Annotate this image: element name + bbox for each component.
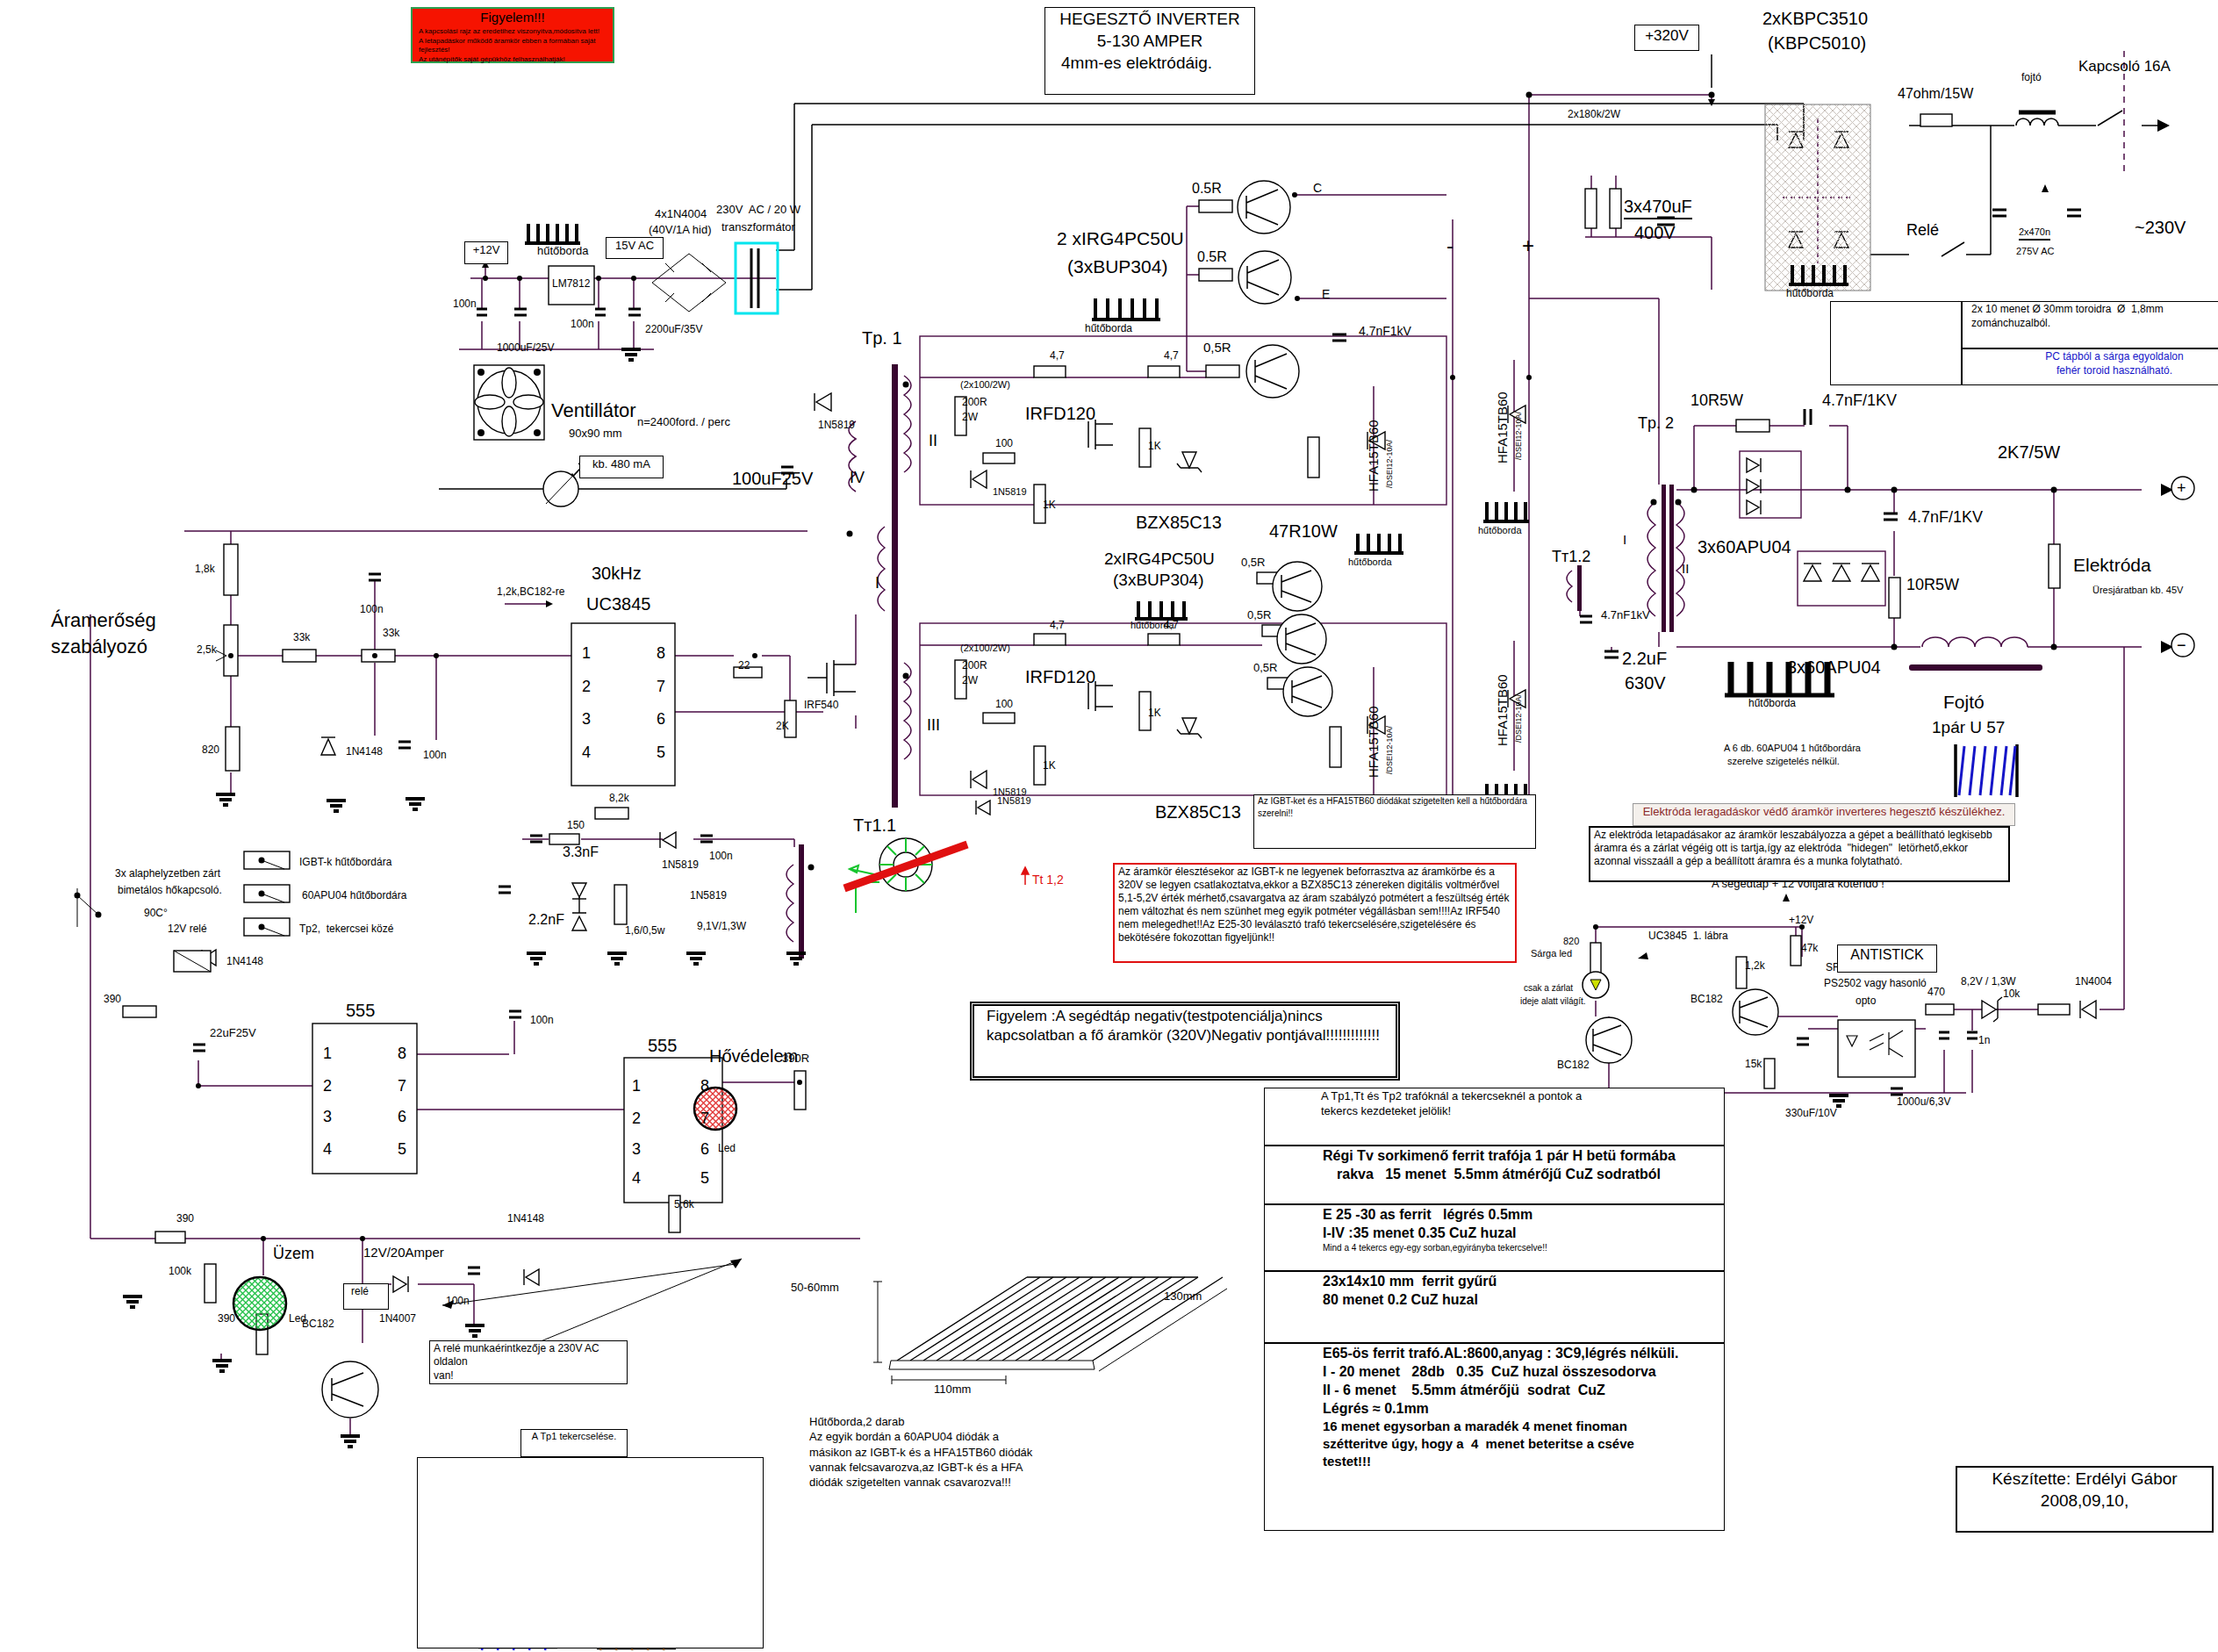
c-47nf-3: 4.7nF/1KV <box>1822 391 1897 410</box>
rele-small-box-line-1: relé <box>348 1285 384 1298</box>
thermo-1: 3x alaphelyzetben zárt <box>115 868 220 880</box>
igbt-isolation-note-line-1: Az IGBT-ket és a HFA15TB60 diódákat szig… <box>1258 796 1532 808</box>
d-4x1n4004-label: 4x1N4004 <box>655 208 707 221</box>
rele-small-box: relé <box>343 1283 389 1310</box>
igbt-label-2b: (3xBUP304) <box>1113 571 1204 590</box>
uc-pin-5: 5 <box>657 743 665 762</box>
kapcsolo-label: Kapcsoló 16A <box>2078 58 2171 75</box>
notes-tp2-line-5: 16 menet egysorban a maradék 4 menet fin… <box>1268 1419 1720 1435</box>
r-390-2: 390 <box>176 1213 194 1225</box>
hutoborda-label-3: hűtőborda <box>1348 557 1392 568</box>
antistick-box: ANTISTICK <box>1837 945 1937 973</box>
warning-box-line-1: Figyelem!!! <box>416 10 609 26</box>
dim-110: 110mm <box>934 1383 971 1397</box>
uc-pin-4: 4 <box>582 743 591 762</box>
timer2-pin-8: 8 <box>700 1077 709 1095</box>
apu-note-2: szerelve szigetelés nélkül. <box>1727 756 1840 767</box>
dim-50-60: 50-60mm <box>791 1282 839 1295</box>
apu-label-1: 3x60APU04 <box>1698 537 1791 557</box>
dsei-label-3: /DSEI12-10A/ <box>1385 726 1394 774</box>
igbt-isolation-note-line-2: szerelni!! <box>1258 808 1532 820</box>
r-100k: 100k <box>169 1266 191 1278</box>
r-2x100-2: (2x100/2W) <box>960 643 1010 654</box>
r-05r-1: 0.5R <box>1192 181 1222 197</box>
c-2x470n-label: 2x470n <box>2019 226 2050 241</box>
credit-box: Készítette: Erdélyi Gábor2008,09,10, <box>1956 1466 2214 1533</box>
uc-pin-3: 3 <box>582 710 591 729</box>
d-1n5819-c: 1N5819 <box>690 890 727 902</box>
heatsink-note-line-2: Az egyik bordán a 60APU04 diódák a <box>809 1430 1101 1444</box>
bzx-label-1: BZX85C13 <box>1136 513 1222 533</box>
c-22uf-label: 2.2uF <box>1622 649 1667 669</box>
emit-label: E <box>1322 287 1330 301</box>
d-1n5819-b: 1N5819 <box>662 859 699 872</box>
timer1-pin-7: 7 <box>398 1077 406 1095</box>
dsei-label-2: /DSEI12-10A/ <box>1514 412 1523 460</box>
notes-fojto-line-1: Régi Tv sorkimenő ferrit trafója 1 pár H… <box>1268 1147 1720 1165</box>
led-label-2: Led <box>718 1143 736 1155</box>
igbt-isolation-note: Az IGBT-ket és a HFA15TB60 diódákat szig… <box>1253 794 1536 849</box>
toroid-note-box-line-2: zománchuzalból. <box>1966 317 2218 330</box>
tp1-label: Tp. 1 <box>862 328 902 348</box>
lm7812-label: LM7812 <box>552 278 590 291</box>
r-1k-4: 1K <box>1148 707 1161 720</box>
letapadas-box-line-1: Az elektróda letapadásakor az áramkör le… <box>1594 829 2005 868</box>
r-2k7-label: 2K7/5W <box>1998 442 2060 463</box>
bc182-label-2: BC182 <box>1557 1059 1590 1072</box>
tp1-tekercs-box: A Tp1 tekercselése. <box>520 1429 628 1457</box>
d-1n5819-e: 1N5819 <box>993 486 1027 498</box>
c-100n-t2: 100n <box>446 1296 470 1308</box>
r-16-05w: 1,6/0,5w <box>625 925 664 937</box>
c-1n-label: 1n <box>1978 1035 1990 1047</box>
choke-icon-blue <box>1956 744 2017 797</box>
tp2-label: Tp. 2 <box>1638 414 1674 433</box>
r-1k-3: 1K <box>1043 760 1056 772</box>
c-33nf: 3.3nF <box>563 844 599 860</box>
bus-plus: + <box>1522 233 1534 258</box>
elektroda-label: Elektróda <box>2073 555 2151 576</box>
r-2k: 2K <box>776 721 789 733</box>
r-390r-label: 390R <box>782 1052 809 1066</box>
c-47nf-2: 4.7nF1kV <box>1601 609 1650 622</box>
r-15k: 15k <box>1745 1059 1762 1071</box>
r-05r-2: 0.5R <box>1197 249 1227 265</box>
apu-label-2: 3x60APU04 <box>1787 657 1881 678</box>
r-2x180k-label: 2x180k/2W <box>1568 109 1620 121</box>
tt11-label: Tт1.1 <box>853 815 896 836</box>
v15ac-box: 15V AC <box>606 237 664 259</box>
tp2-winding-i: I <box>1623 532 1626 547</box>
notes-tp2-line-6: szétteritve úgy, hogy a 4 menet beterits… <box>1268 1436 1720 1453</box>
notes-tt: 23x14x10 mm ferrit gyűrű80 menet 0.2 CuZ… <box>1264 1271 1725 1343</box>
uc-labra-note: UC3845 1. lábra <box>1648 930 1728 943</box>
heatsink-note-line-4: vannak felcsavarozva,az IGBT-k és a HFA <box>809 1461 1101 1475</box>
aramerosseg-1: Áramerőség <box>51 609 156 631</box>
fojto-label: Fojtó <box>1943 692 1985 713</box>
c-1000uf-label: 1000uF/25V <box>497 342 554 355</box>
notes-tp1-line-3: Mind a 4 tekercs egy-egy sorban,egyirány… <box>1268 1243 1720 1254</box>
rele-note-box: A relé munkaérintkezője a 230V AC oldalo… <box>429 1340 628 1384</box>
c-2200uf-label: 2200uF/35V <box>645 324 702 336</box>
notes-fojto-line-2: rakva 15 menet 5.5mm átmérőjű CuZ sodrat… <box>1268 1166 1720 1183</box>
warning-box-line-4: Az utánépítők saját gépükhöz felhasználh… <box>416 55 609 64</box>
dsei-label-1: /DSEI12-10A/ <box>1385 440 1394 488</box>
r-820-anti: 820 <box>1563 936 1579 947</box>
antistick-box-line-1: ANTISTICK <box>1841 946 1933 964</box>
plus-12v-box-line-1: +12V <box>469 243 504 257</box>
r-47-4: 4,7 <box>1164 620 1179 632</box>
r-05r-5: 0,5R <box>1247 609 1271 622</box>
c-100n-t1: 100n <box>530 1015 554 1027</box>
igbt-label-2a: 2xIRG4PC50U <box>1104 549 1215 569</box>
r-470: 470 <box>1927 987 1945 999</box>
timer1-pin-6: 6 <box>398 1108 406 1126</box>
timer1-pin-5: 5 <box>398 1140 406 1159</box>
r-390-1: 390 <box>104 994 121 1006</box>
kbpc-label: 2xKBPC3510 <box>1762 9 1868 29</box>
c-100n-psu1: 100n <box>453 298 477 311</box>
winding-i: I <box>875 574 879 593</box>
toroid-icon-box <box>1830 301 1962 385</box>
notes-dots-line-1: A Tp1,Tt és Tp2 trafóknál a tekercseknél… <box>1268 1089 1720 1103</box>
warning-box-line-2: A kapcsolási rajz az eredetihez viszonyí… <box>416 27 609 36</box>
d-1n4148-rele: 1N4148 <box>226 956 263 968</box>
thermo-2: bimetálos hőkapcsoló. <box>118 885 222 897</box>
c-1000u-label: 1000u/6,3V <box>1897 1096 1950 1109</box>
bzx-label-2: BZX85C13 <box>1155 802 1241 822</box>
timer1-pin-1: 1 <box>323 1045 332 1063</box>
output-diode-groups <box>1740 451 1885 606</box>
r-47-1: 4,7 <box>1050 350 1065 363</box>
timer2-pin-3: 3 <box>632 1140 641 1159</box>
title-box-line-2: 5-130 AMPER <box>1049 31 1251 52</box>
kbpc-label-2: (KBPC5010) <box>1768 33 1866 54</box>
timer2-pin-6: 6 <box>700 1140 709 1159</box>
r-100-2: 100 <box>995 699 1013 711</box>
schematic-canvas: 2xKBPC3510(KBPC5010)47ohm/15WfojtóKapcso… <box>0 0 2218 1652</box>
uresjarat-label: Üresjáratban kb. 45V <box>2092 585 2183 596</box>
toroid-note-box-line-1: 2x 10 menet Ø 30mm toroidra Ø 1,8mm <box>1966 303 2218 316</box>
hutoborda-label-2: hűtőborda <box>1085 323 1132 335</box>
trafo-label-1: 230V AC / 20 W <box>716 204 800 217</box>
bus-minus: - <box>1446 233 1454 258</box>
warning-box: Figyelem!!!A kapcsolási rajz az eredetih… <box>411 7 614 63</box>
r-390-3: 390 <box>218 1313 235 1325</box>
rele-12v-label: 12V relé <box>168 923 207 936</box>
notes-tp2-line-3: II - 6 menet 5.5mm átmérőjü sodrat CuZ <box>1268 1382 1720 1399</box>
uc-pin-7: 7 <box>657 678 665 696</box>
term-minus: − <box>2177 636 2186 655</box>
title-box-line-3: 4mm-es elektródáig. <box>1049 53 1251 74</box>
hutoborda-label-1: hűtőborda <box>537 245 589 258</box>
hfa-label-2: HFA15TB60 <box>1495 391 1510 463</box>
r-1k-1: 1K <box>1043 499 1056 512</box>
kb480-box: kb. 480 mA <box>579 456 664 478</box>
uzem-label: Üzem <box>273 1245 314 1263</box>
dsei-label-4: /DSEI12-10A/ <box>1514 694 1523 743</box>
timer2-pin-1: 1 <box>632 1077 641 1095</box>
d-1n4004-label: 1N4004 <box>2075 976 2112 988</box>
c-47nf-4: 4.7nF/1KV <box>1908 508 1983 527</box>
c-22uf-label-2: 630V <box>1625 673 1666 693</box>
ventillator-label: Ventillátor <box>551 399 636 421</box>
credit-box-line-1: Készítette: Erdélyi Gábor <box>1961 1469 2208 1490</box>
bc182-label-1: BC182 <box>1690 994 1723 1006</box>
credit-box-line-2: 2008,09,10, <box>1961 1490 2208 1512</box>
notes-tt-line-1: 23x14x10 mm ferrit gyűrű <box>1268 1273 1720 1290</box>
timer2-pin-7: 7 <box>700 1110 709 1128</box>
uc3845-label: UC3845 <box>586 594 650 614</box>
heatsink-note-line-1: Hűtőborda,2 darab <box>809 1415 1101 1429</box>
r-10r5w-2: 10R5W <box>1906 576 1959 594</box>
hfa-label-1: HFA15TB60 <box>1366 420 1381 492</box>
timer1-label: 555 <box>346 1001 375 1021</box>
igbt-label-1a: 2 xIRG4PC50U <box>1057 228 1184 249</box>
warning-box-line-3: A letapadáskor működő áramkör ebben a fo… <box>416 37 609 54</box>
timer1-pin-4: 4 <box>323 1140 332 1159</box>
r-33k-1: 33k <box>293 632 310 644</box>
plus-320v-box: +320V <box>1634 25 1699 51</box>
r-150: 150 <box>567 820 585 832</box>
segedtap-warning-box: Figyelem :A segédtáp negativ(testpotenci… <box>970 1002 1400 1081</box>
toroid-note-blue-box-line-1: PC tápból a sárga egyoldalon <box>1966 350 2218 363</box>
tt12-label: Tт1.2 <box>1552 548 1590 566</box>
timer1-pin-2: 2 <box>323 1077 332 1095</box>
sarga-note-2: ideje alatt világít. <box>1520 996 1586 1007</box>
r-1k-2: 1K <box>1148 441 1161 453</box>
r-12k-anti: 1,2k <box>1745 960 1765 973</box>
thermo-3: 90C° <box>144 908 168 920</box>
sarga-note-1: csak a zárlat <box>1524 983 1573 994</box>
rele-rating: 12V/20Amper <box>363 1245 444 1260</box>
r-25k: 2,5k <box>197 644 217 657</box>
title-box-line-1: HEGESZTŐ INVERTER <box>1049 9 1251 30</box>
toroid-icon-green <box>844 838 1029 913</box>
rele-top-label: Relé <box>1906 221 1939 240</box>
r-200r-1b: 2W <box>962 412 978 424</box>
v15ac-box-line-1: 15V AC <box>610 239 659 253</box>
sarga-led-label: Sárga led <box>1531 948 1572 959</box>
output-terminals <box>2171 477 2194 657</box>
notes-fojto: Régi Tv sorkimenő ferrit trafója 1 pár H… <box>1264 1146 1725 1204</box>
d-1n4148-t: 1N4148 <box>507 1213 544 1225</box>
dim-130: 130mm <box>1164 1290 1202 1304</box>
toroid-note-box: 2x 10 menet Ø 30mm toroidra Ø 1,8mmzomán… <box>1962 301 2218 348</box>
notes-dots: A Tp1,Tt és Tp2 trafóknál a tekercseknél… <box>1264 1088 1725 1146</box>
thermo-sw2: 60APU04 hűtőbordára <box>302 890 406 902</box>
term-plus: + <box>2177 479 2186 498</box>
r-05r-4: 0,5R <box>1241 557 1265 570</box>
letapadas-box: Az elektróda letapadásakor az áramkör le… <box>1589 826 2010 882</box>
timer2-pin-5: 5 <box>700 1169 709 1188</box>
notes-tt-line-2: 80 menet 0.2 CuZ huzal <box>1268 1291 1720 1309</box>
fan-icon <box>474 365 544 440</box>
irf540-label: IRF540 <box>804 700 838 712</box>
r-100-1: 100 <box>995 438 1013 450</box>
opto-label-3: opto <box>1856 995 1876 1008</box>
notes-tp1-line-1: E 25 -30 as ferrit légrés 0.5mm <box>1268 1206 1720 1224</box>
rele-note-box-line-2: van! <box>434 1369 623 1383</box>
r-10r5w-1: 10R5W <box>1690 391 1743 410</box>
notes-tp1: E 25 -30 as ferrit légrés 0.5mmI-IV :35 … <box>1264 1204 1725 1271</box>
irfd120-label-1: IRFD120 <box>1025 404 1095 424</box>
notes-tp2-line-1: E65-ös ferrit trafó.AL:8600,anyag : 3C9,… <box>1268 1345 1720 1362</box>
kb480-box-line-1: kb. 480 mA <box>584 457 659 471</box>
tp1-winding-box <box>417 1457 764 1648</box>
coll-label: C <box>1313 181 1322 195</box>
irfd120-label-2: IRFD120 <box>1025 667 1095 687</box>
startup-warning-box-line-1: Az áramkör élesztésekor az IGBT-k ne leg… <box>1118 866 1511 945</box>
c-22uf25-label: 22uF25V <box>210 1027 256 1040</box>
d-1n5819-psu: 1N5819 <box>818 420 855 432</box>
fojto-label-2: 1pár U 57 <box>1932 718 2005 737</box>
r-200r-1: 200R <box>962 397 987 409</box>
notes-tp2-line-2: I - 20 menet 28db 0.35 CuZ huzal összeso… <box>1268 1363 1720 1381</box>
heatsink-note-line-5: diódák szigetelten vannak csavarozva!!! <box>809 1476 1101 1490</box>
r-47-2: 4,7 <box>1164 350 1179 363</box>
notes-dots-line-2: tekercs kezdeteket jelölik! <box>1268 1104 1720 1118</box>
hfa-label-4: HFA15TB60 <box>1495 674 1510 746</box>
leragadas-strip: Elektróda leragadáskor védő áramkör inve… <box>1633 803 2015 826</box>
winding-ii: II <box>929 432 937 450</box>
uc-pin-1: 1 <box>582 644 591 663</box>
startup-warning-box: Az áramkör élesztésekor az IGBT-k ne leg… <box>1113 863 1517 963</box>
d-1n5819-f: 1N5819 <box>993 786 1027 798</box>
tt12-red-label: Tt 1,2 <box>1032 873 1064 887</box>
uc-pin-2: 2 <box>582 678 591 696</box>
c-100n-reg2: 100n <box>423 750 447 762</box>
r-10k: 10k <box>2003 988 2020 1001</box>
tp2-winding-ii: II <box>1682 561 1689 576</box>
r-82k: 8,2k <box>609 793 629 805</box>
heatsink-note: Hűtőborda,2 darabAz egyik bordán a 60APU… <box>806 1414 1104 1512</box>
notes-tp2-line-4: Légrés ≈ 0.1mm <box>1268 1400 1720 1418</box>
r-22: 22 <box>738 660 750 672</box>
thermo-sw3: Tp2, tekercsei közé <box>299 923 393 936</box>
z-82v-label: 8,2V / 1,3W <box>1961 976 2016 988</box>
p12v-label: +12V <box>1789 915 1813 927</box>
r-47k: 47k <box>1801 943 1818 955</box>
c-330uf-label: 330uF/10V <box>1785 1108 1837 1120</box>
rele-note-box-line-1: A relé munkaérintkezője a 230V AC oldalo… <box>434 1342 623 1368</box>
c-100n-osc: 100n <box>709 851 733 863</box>
c-100uf25-label: 100uF25V <box>732 469 813 489</box>
v230-label: ~230V <box>2135 218 2186 238</box>
segedtap-warning-box-line-1: Figyelem :A segédtáp negativ(testpotenci… <box>978 1007 1392 1025</box>
notes-tp2: E65-ös ferrit trafó.AL:8600,anyag : 3C9,… <box>1264 1343 1725 1531</box>
c-3x470uf-label: 3x470uF <box>1624 197 1692 219</box>
uc-pin-6: 6 <box>657 710 665 729</box>
c-100n-psu2: 100n <box>571 319 594 331</box>
timer2-label: 555 <box>648 1036 677 1056</box>
timer1-pin-8: 8 <box>398 1045 406 1063</box>
uc-pin-8: 8 <box>657 644 665 663</box>
toroid-note-blue-box: PC tápból a sárga egyoldalonfehér toroid… <box>1962 348 2218 385</box>
notes-tp1-line-2: I-IV :35 menet 0.35 CuZ huzal <box>1268 1225 1720 1242</box>
thermo-sw1: IGBT-k hűtőbordára <box>299 857 391 869</box>
notes-tp2-line-7: testet!!! <box>1268 1454 1720 1470</box>
heatsink-note-line-3: másikon az IGBT-k és a HFA15TB60 diódák <box>809 1446 1101 1460</box>
hutoborda-label-9: hűtőborda <box>1786 288 1834 300</box>
r-18k: 1,8k <box>195 564 215 576</box>
r-47ohm-label: 47ohm/15W <box>1898 86 1973 102</box>
c-2x470n-label-2: 275V AC <box>2016 246 2054 257</box>
apu-note-1: A 6 db. 60APU04 1 hűtőbordára <box>1724 743 1861 754</box>
d-4x1n4004-label-2: (40V/1A hid) <box>649 224 712 237</box>
hutoborda-label-4: hűtőborda <box>1478 525 1522 536</box>
fojto-top-label: fojtó <box>2021 72 2042 84</box>
c-22nf: 2.2nF <box>528 912 564 928</box>
bc182-label-3: BC182 <box>302 1318 334 1331</box>
ventillator-rpm: n=2400ford. / perc <box>637 416 730 429</box>
z-91v: 9,1V/1,3W <box>697 921 746 933</box>
r-05r-3: 0,5R <box>1203 340 1231 355</box>
opto-label-2: PS2502 vagy hasonló <box>1824 978 1927 990</box>
bridge-rectifier-block <box>1765 104 1870 291</box>
d-1n4007-label: 1N4007 <box>379 1313 416 1325</box>
title-box: HEGESZTŐ INVERTER5-130 AMPER4mm-es elekt… <box>1044 7 1255 95</box>
r-2x100-1: (2x100/2W) <box>960 379 1010 391</box>
r-820: 820 <box>202 744 219 757</box>
segedtap-warning-box-line-2: kapcsolatban a fő áramkör (320V)Negativ … <box>978 1026 1392 1045</box>
r-47r10w-1: 47R10W <box>1269 521 1338 542</box>
c-100n-reg1: 100n <box>360 604 384 616</box>
freq-label: 30kHz <box>592 564 642 584</box>
r-12k-note: 1,2k,BC182-re <box>497 586 564 599</box>
timer2-pin-2: 2 <box>632 1110 641 1128</box>
hfa-label-3: HFA15TB60 <box>1366 706 1381 778</box>
r-56k: 5,6k <box>674 1199 694 1211</box>
c-47nf-1: 4.7nF1kV <box>1359 324 1411 338</box>
r-05r-6: 0,5R <box>1253 662 1277 675</box>
timer2-pin-4: 4 <box>632 1169 641 1188</box>
ventillator-size: 90x90 mm <box>569 427 622 441</box>
r-200r-2: 200R <box>962 660 987 672</box>
leragadas-strip-line-1: Elektróda leragadáskor védő áramkör inve… <box>1637 805 2011 819</box>
winding-iv: IV <box>850 469 865 487</box>
plus-320v-box-line-1: +320V <box>1639 26 1695 45</box>
trafo-label-2: transzformátor <box>721 221 795 234</box>
c-3x470uf-label-2: 400V <box>1634 223 1676 243</box>
toroid-note-blue-box-line-2: fehér toroid használható. <box>1966 364 2218 377</box>
igbt-label-1b: (3xBUP304) <box>1067 256 1167 277</box>
plus-12v-box: +12V <box>464 241 508 264</box>
d-1n4148-reg: 1N4148 <box>346 746 383 758</box>
r-33k-2: 33k <box>383 628 399 640</box>
r-47-3: 4,7 <box>1050 620 1065 632</box>
tp1-tekercs-box-line-1: A Tp1 tekercselése. <box>525 1431 623 1443</box>
r-200r-2b: 2W <box>962 675 978 687</box>
timer1-pin-3: 3 <box>323 1108 332 1126</box>
aramerosseg-2: szabályozó <box>51 636 147 657</box>
hutoborda-label-8: hűtőborda <box>1748 698 1796 710</box>
winding-iii: III <box>927 716 940 735</box>
